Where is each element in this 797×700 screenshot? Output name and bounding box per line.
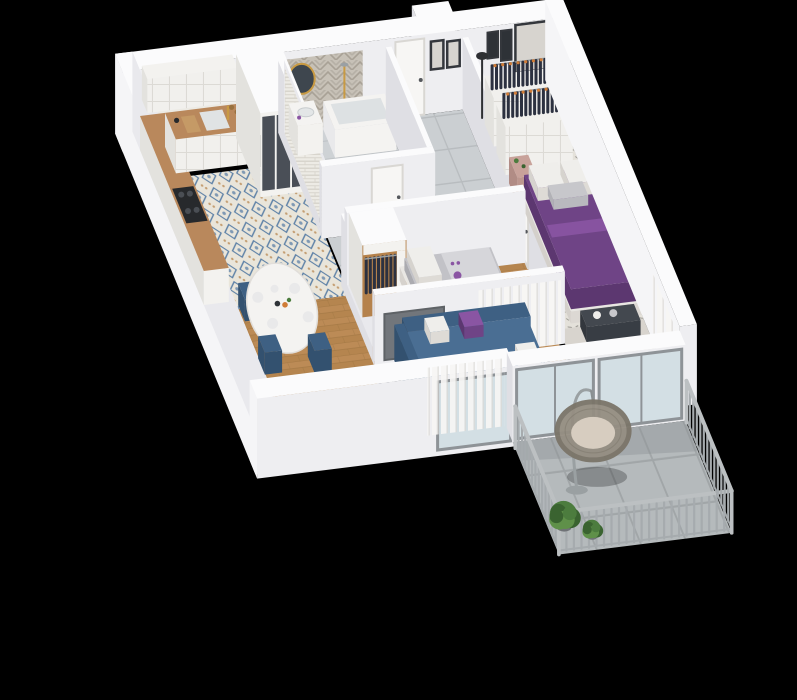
floor-lamp-shade bbox=[476, 52, 488, 60]
bedroom-picture-small-1 bbox=[488, 31, 499, 58]
hallway-picture-1 bbox=[431, 40, 444, 70]
apartment-3d-floorplan bbox=[0, 0, 797, 700]
wardrobe-door-1 bbox=[262, 115, 275, 190]
south-curtains bbox=[427, 358, 504, 436]
apartment-render-stage bbox=[0, 0, 797, 700]
shower-head bbox=[340, 63, 348, 67]
bathroom-door-handle bbox=[397, 195, 401, 199]
vanity-sink bbox=[298, 108, 314, 117]
bedroom-picture-small-2 bbox=[501, 30, 512, 61]
bed-pillow-accent bbox=[548, 181, 588, 210]
entry-door-handle bbox=[419, 78, 423, 82]
hallway-picture-2 bbox=[447, 40, 460, 68]
bath-bottle bbox=[297, 116, 301, 120]
